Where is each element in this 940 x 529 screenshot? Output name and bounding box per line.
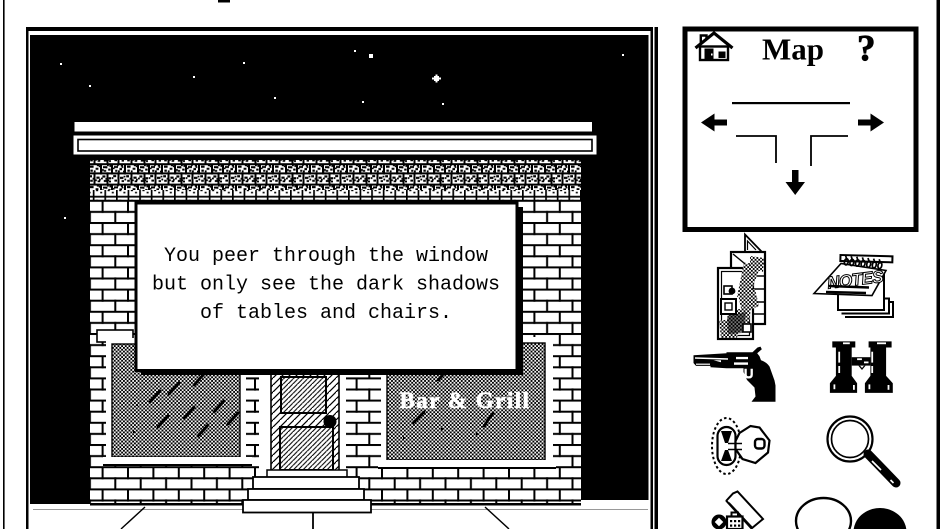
svg-text:Bar & Grill: Bar & Grill — [399, 388, 530, 413]
svg-text:but only see the dark shadows: but only see the dark shadows — [152, 274, 500, 297]
svg-text:You peer through the window: You peer through the window — [164, 245, 488, 268]
svg-text:of tables and chairs.: of tables and chairs. — [200, 302, 452, 325]
svg-text:Map: Map — [762, 32, 824, 67]
svg-text:?: ? — [857, 29, 876, 70]
